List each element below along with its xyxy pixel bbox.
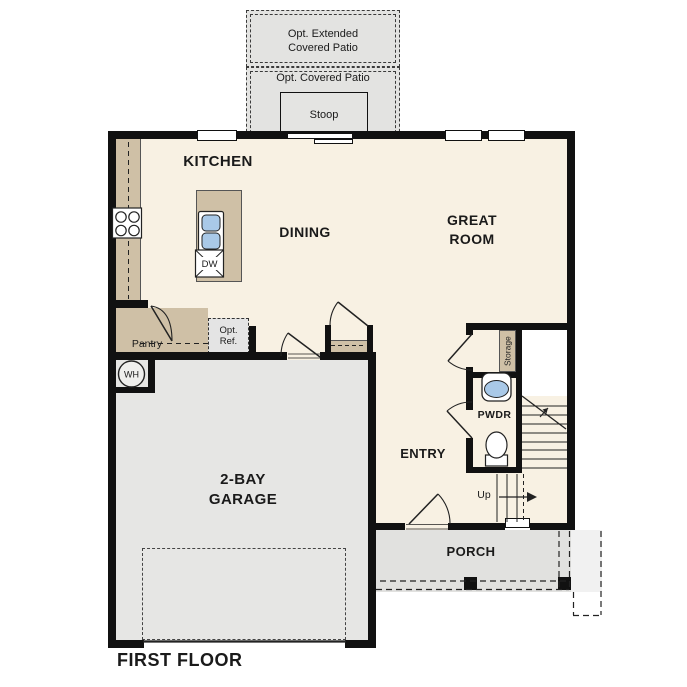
great-room-line1: GREAT <box>447 212 497 228</box>
opt-extended-patio-line2: Covered Patio <box>288 42 358 54</box>
window-greatroom-1 <box>445 130 482 141</box>
stoop-label: Stoop <box>310 109 339 121</box>
opt-ref-line1: Opt. <box>220 325 238 336</box>
kitchen-label: KITCHEN <box>158 153 278 170</box>
garage-door-opening <box>287 352 320 360</box>
window-kitchen <box>197 130 237 141</box>
great-room-line2: ROOM <box>449 231 494 247</box>
wall-ref-stub <box>249 326 256 360</box>
wall-garage-top-left <box>108 352 287 360</box>
stair-upper-void <box>522 330 567 396</box>
porch-post-left <box>464 577 477 590</box>
wall-right <box>567 131 575 530</box>
dining-label: DINING <box>255 224 355 240</box>
wall-pwdr-bottom <box>466 467 522 473</box>
sliding-door-panel-inner <box>314 139 353 144</box>
wall-garage-right <box>368 352 376 648</box>
kitchen-counter-left <box>116 139 141 300</box>
entry-label: ENTRY <box>380 446 466 461</box>
wall-left <box>108 131 116 648</box>
porch-optional-extension <box>571 530 602 592</box>
wall-closet-right <box>367 325 373 360</box>
floor-plan: Opt. ExtendedCovered Patio Opt. Covered … <box>0 0 687 687</box>
wall-porch-top-a <box>375 523 405 530</box>
wall-greatroom-bottom <box>466 323 575 330</box>
storage-shelf: Storage <box>499 330 516 372</box>
wall-garage-bottom-left <box>108 640 144 648</box>
coat-closet-shelf <box>331 340 367 352</box>
porch-post-right <box>558 577 571 590</box>
window-porch <box>505 518 530 528</box>
opt-refrigerator-label: Opt.Ref. <box>220 325 238 347</box>
opt-extended-patio-line1: Opt. Extended <box>288 28 358 40</box>
opt-covered-patio-label: Opt. Covered Patio <box>247 72 399 84</box>
opt-refrigerator-box: Opt.Ref. <box>208 318 249 354</box>
plan-title: FIRST FLOOR <box>117 650 277 671</box>
storage-label: Storage <box>503 336 513 366</box>
opt-extended-patio-label: Opt. ExtendedCovered Patio <box>247 27 399 55</box>
up-label: Up <box>472 489 496 501</box>
front-door-opening <box>405 523 448 530</box>
wall-garage-bottom-right <box>345 640 376 648</box>
wall-porch-top-c <box>530 523 575 530</box>
wall-wh-bottom <box>116 387 155 393</box>
garage-label: 2-BAYGARAGE <box>183 470 303 510</box>
wall-storage-left-stub <box>466 323 473 335</box>
kitchen-island <box>196 190 242 282</box>
garage-door-dashed-outline <box>142 548 346 640</box>
pwdr-label: PWDR <box>473 409 516 421</box>
opt-extended-patio-box: Opt. ExtendedCovered Patio <box>246 10 400 67</box>
opt-ref-line2: Ref. <box>220 336 237 347</box>
garage-line1: 2-BAY <box>220 471 266 488</box>
great-room-label: GREATROOM <box>422 211 522 249</box>
wall-closet-left <box>325 325 331 360</box>
wall-pantry-stub <box>108 300 148 308</box>
window-greatroom-2 <box>488 130 525 141</box>
wall-porch-top-b <box>448 523 505 530</box>
wall-stairs-left <box>516 330 522 473</box>
garage-line2: GARAGE <box>209 491 277 508</box>
porch-label: PORCH <box>431 544 511 559</box>
wall-storage-pwdr-divider <box>466 372 516 378</box>
pantry-label: Pantry <box>119 338 175 350</box>
